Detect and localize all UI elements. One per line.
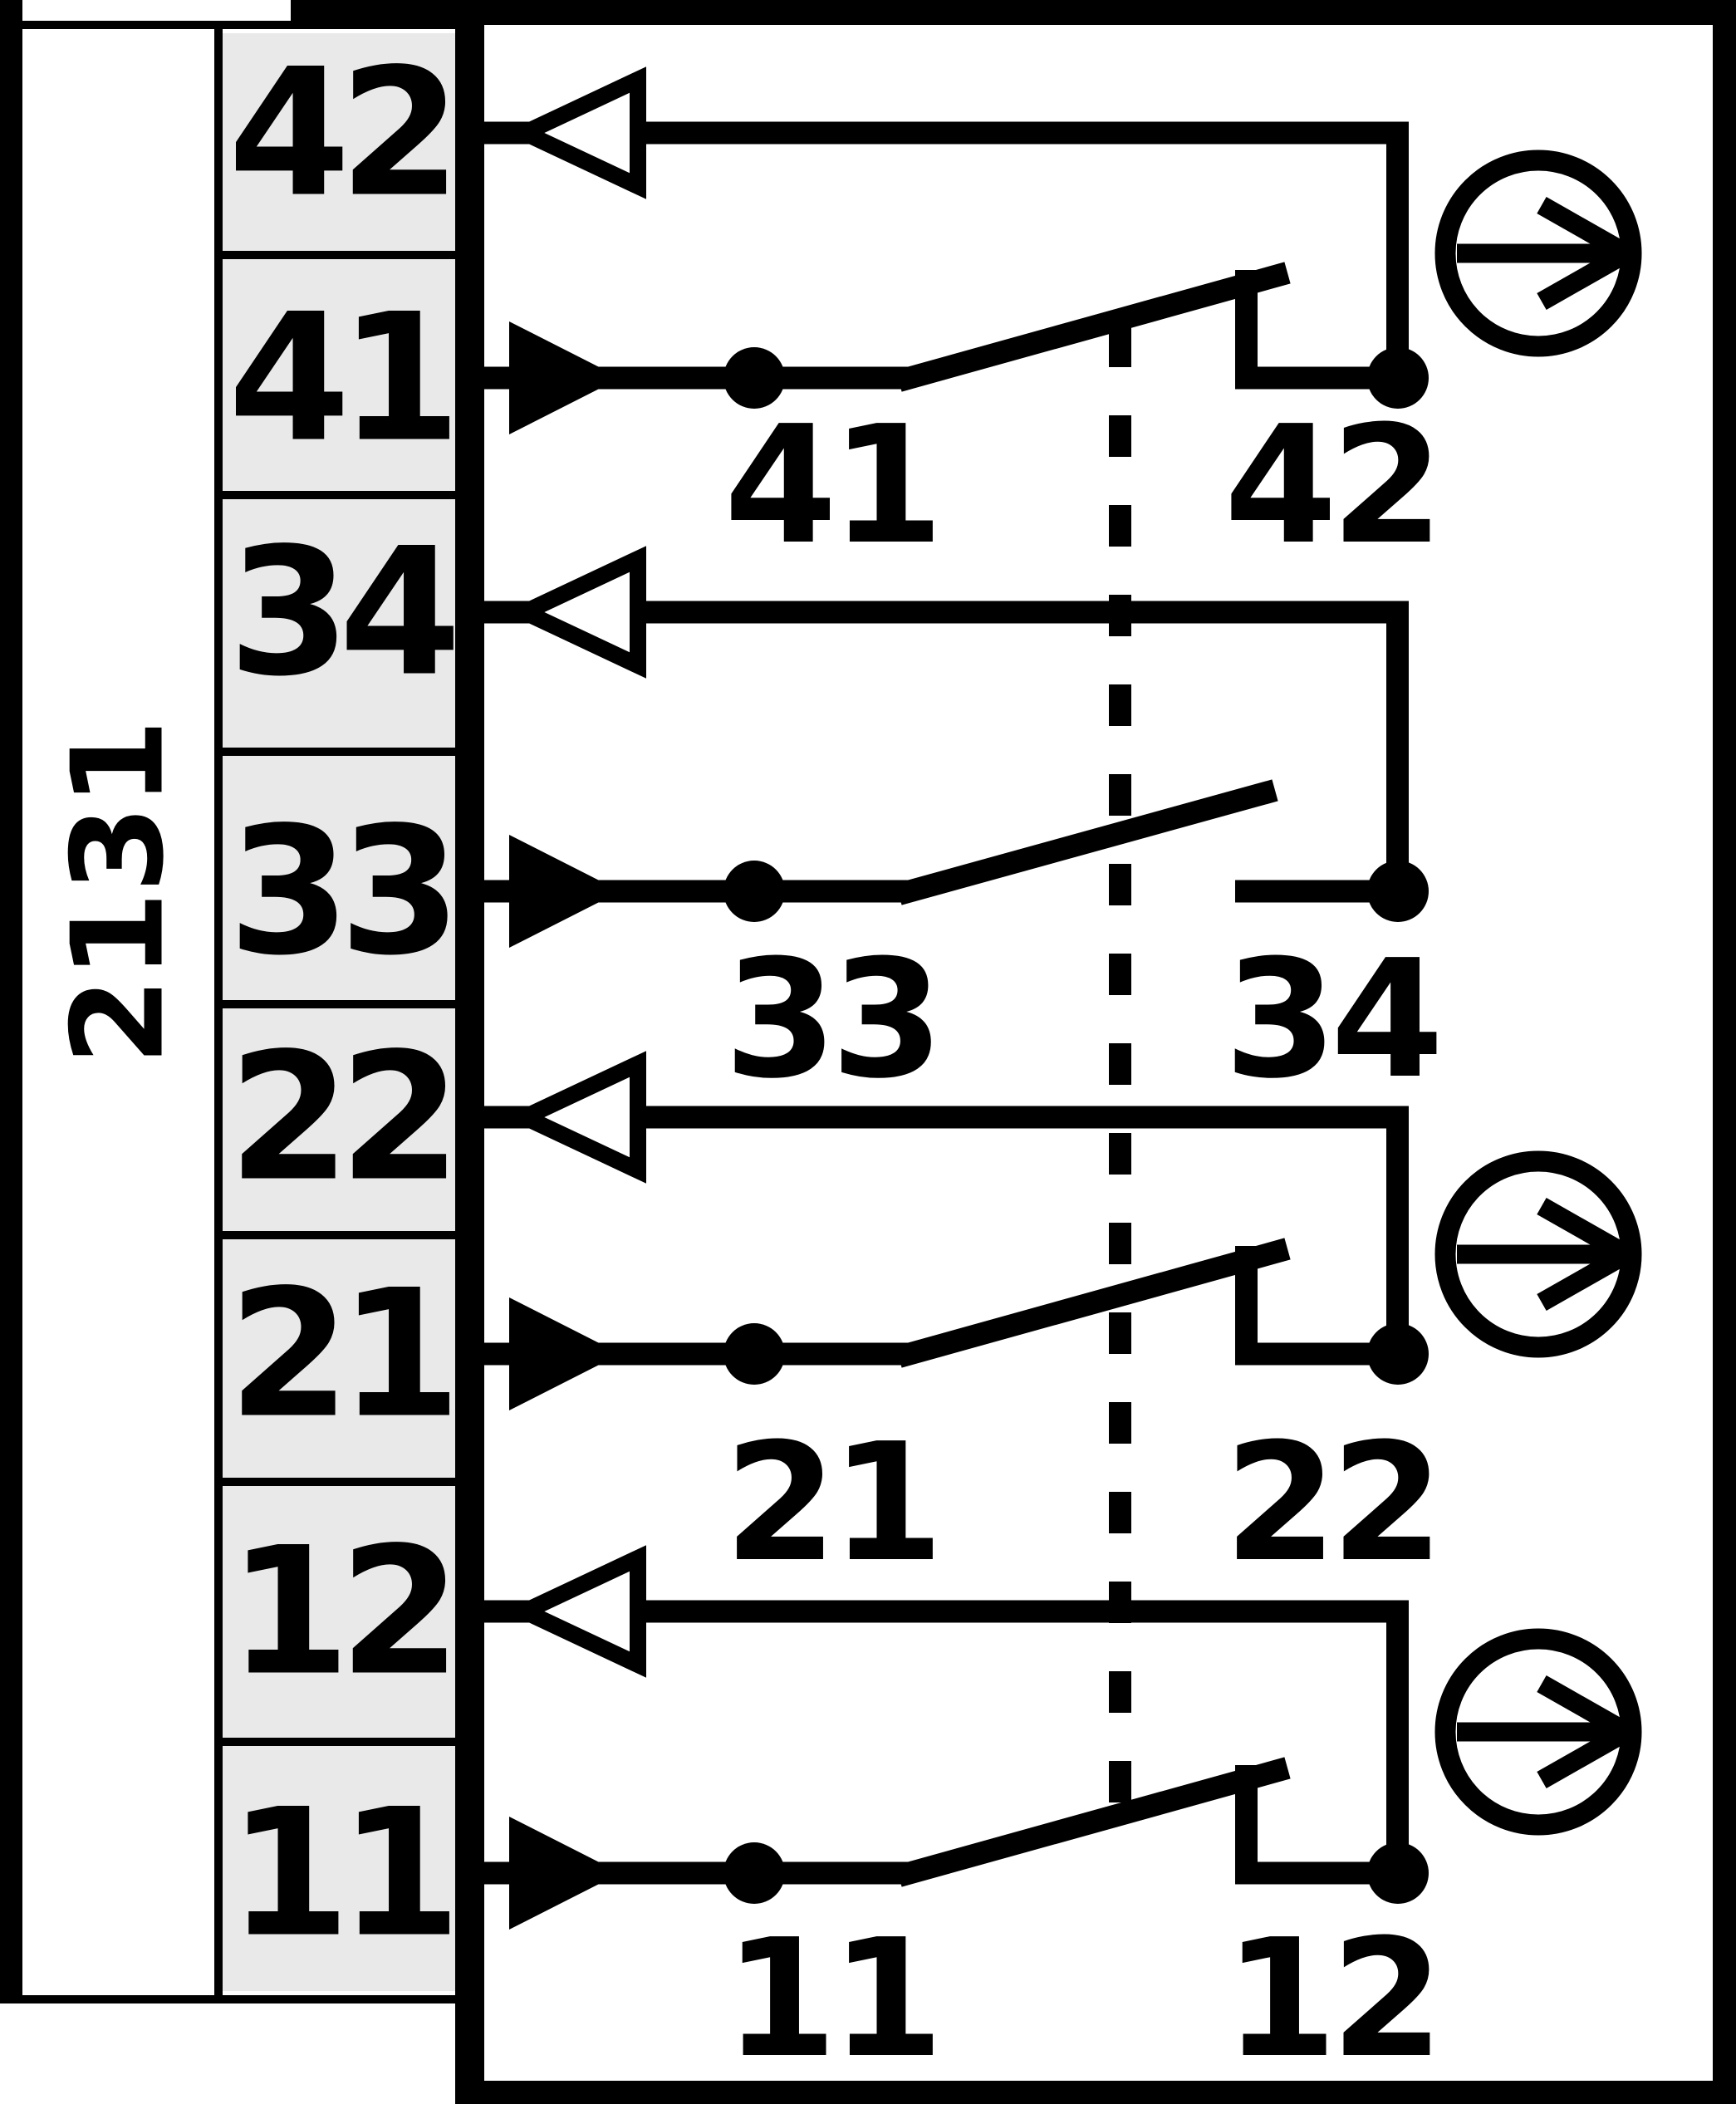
actuation-direction-circle-arrow-icon <box>1445 1639 1631 1825</box>
nc-contact-post <box>1235 270 1258 378</box>
direction-arrow-open-left-icon <box>525 1064 638 1170</box>
terminal-label: 34 <box>228 510 454 715</box>
terminal-label: 42 <box>228 31 449 236</box>
actuation-direction-circle-arrow-icon <box>1445 1161 1631 1347</box>
direction-arrow-open-left-icon <box>525 1558 638 1665</box>
contact-pivot-dot <box>723 1842 785 1904</box>
direction-arrow-filled-right-icon <box>509 1817 620 1930</box>
nc-contact-post <box>1235 1246 1258 1354</box>
contact-fixed-label: 42 <box>1224 391 1438 581</box>
terminal-label: 21 <box>228 1252 449 1457</box>
terminal-strip-border <box>455 0 484 2104</box>
contact-moving-label: 21 <box>724 1409 938 1598</box>
terminal-box-divider <box>223 1478 455 1486</box>
direction-arrow-filled-right-icon <box>509 1297 620 1410</box>
direction-arrow-filled-right-icon <box>509 321 620 434</box>
code-box-divider <box>214 21 223 2003</box>
contact-fixed-label: 12 <box>1224 1905 1438 2094</box>
terminal-box-divider <box>223 491 455 499</box>
terminal-label: 11 <box>228 1771 449 1976</box>
no-contact-arm <box>910 793 1264 891</box>
direction-arrow-open-left-icon <box>525 559 638 665</box>
bottom-border <box>455 2081 1736 2104</box>
diagram-generated-content: 42413433222112114142333421221112 <box>223 31 1437 2095</box>
direction-arrow-filled-right-icon <box>509 835 620 948</box>
terminal-label: 41 <box>228 276 449 481</box>
contact-pivot-dot <box>723 1323 785 1385</box>
terminal-box-divider <box>223 1738 455 1746</box>
contact-moving-label: 41 <box>724 391 938 581</box>
terminal-label: 33 <box>228 789 449 994</box>
nc-contact-arm <box>910 276 1277 378</box>
right-border <box>1713 0 1736 2104</box>
terminal-label: 12 <box>228 1509 449 1714</box>
terminal-box-divider <box>223 1231 455 1239</box>
nc-contact-arm <box>910 1771 1277 1873</box>
strip-bottom-border <box>22 1995 455 2003</box>
terminal-box-divider <box>223 251 455 259</box>
circuit-diagram-canvas: 2131 42413433222112114142333421221112 <box>0 0 1736 2104</box>
device-code-label: 2131 <box>45 720 192 1065</box>
contact-fixed-label: 34 <box>1224 925 1438 1115</box>
nc-contact-post <box>1235 1765 1258 1873</box>
actuation-direction-circle-arrow-icon <box>1445 160 1631 346</box>
terminal-box-divider <box>223 1000 455 1008</box>
contact-fixed-label: 22 <box>1224 1409 1438 1598</box>
contact-moving-label: 11 <box>724 1905 938 2094</box>
contact-arrangement-diagram: 2131 42413433222112114142333421221112 <box>0 0 1736 2104</box>
actuation-direction-icons <box>1445 160 1631 1825</box>
strip-top-border <box>22 21 455 29</box>
terminal-box-divider <box>223 748 455 756</box>
nc-contact-arm <box>910 1252 1277 1354</box>
direction-arrow-open-left-icon <box>525 80 638 186</box>
contact-moving-label: 33 <box>724 925 938 1115</box>
left-border <box>0 0 22 2003</box>
terminal-label: 22 <box>228 1015 449 1220</box>
contact-pivot-dot <box>723 861 785 922</box>
top-border <box>291 0 1736 25</box>
